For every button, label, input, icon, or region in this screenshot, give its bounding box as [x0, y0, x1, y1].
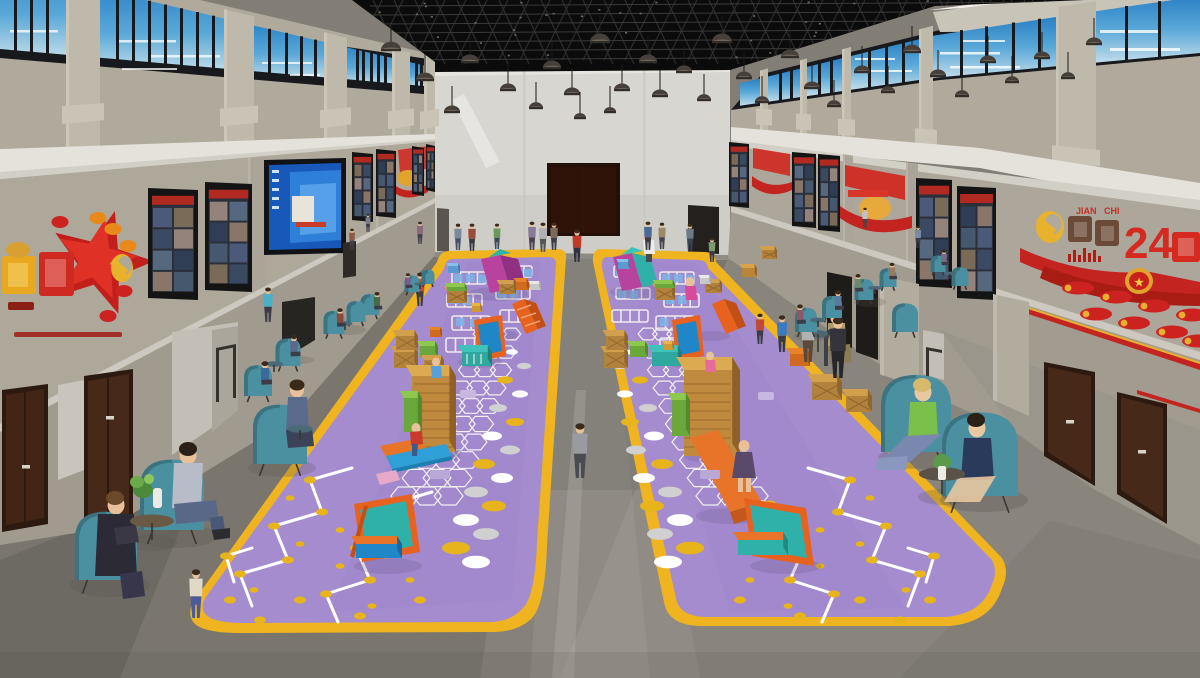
- svg-text:JIAN CHI: JIAN CHI: [1076, 206, 1120, 216]
- svg-text:★: ★: [1134, 277, 1144, 289]
- svg-text:24: 24: [1124, 219, 1173, 268]
